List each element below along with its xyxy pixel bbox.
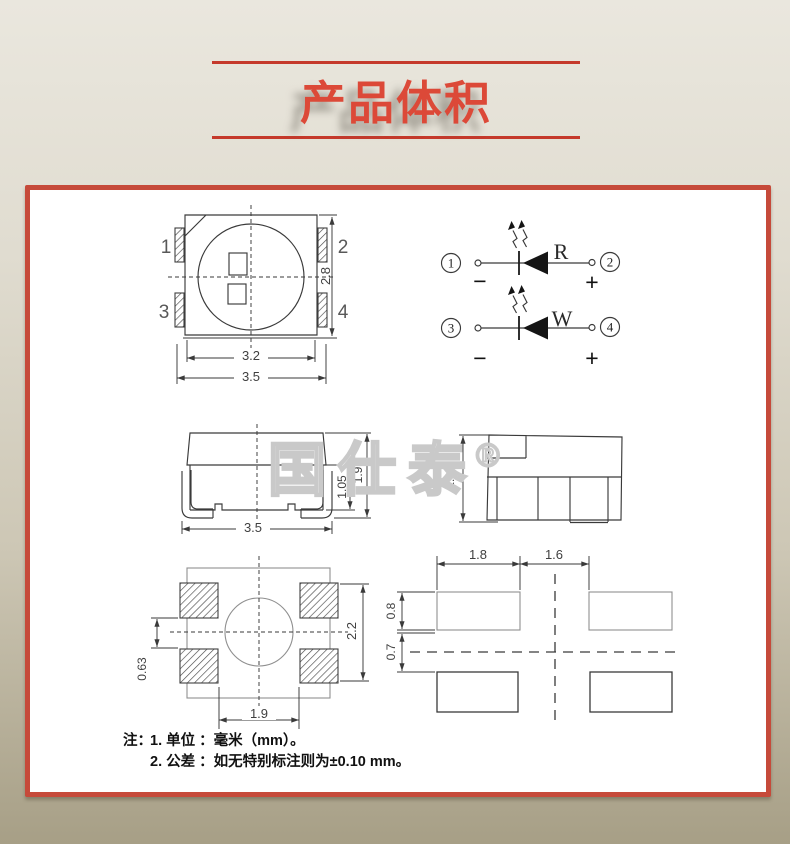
pin-pad-2 xyxy=(318,228,327,262)
terminal-4-circled: 4 xyxy=(607,320,614,335)
pin-pad-4 xyxy=(318,293,327,327)
dim-pad-width: 1.8 xyxy=(469,547,487,562)
pin-pad-1 xyxy=(175,228,184,262)
note-label: 注： xyxy=(123,731,152,749)
layout-pad-2 xyxy=(589,592,672,630)
layout-pad-1 xyxy=(437,592,520,630)
white-led-label: W xyxy=(552,306,573,331)
dim-overall-height: 2.2 xyxy=(344,622,359,640)
red-anode-sign: + xyxy=(585,269,598,295)
circuit-diagram: 1 2 R − + 3 4 W − + xyxy=(442,220,620,371)
center-lines xyxy=(410,574,680,720)
solder-pad-1 xyxy=(180,583,218,618)
extension-lines xyxy=(397,556,589,672)
red-cathode-sign: − xyxy=(473,268,486,294)
layout-pad-3 xyxy=(437,672,518,712)
pin-label-4: 4 xyxy=(338,302,349,323)
dim-pad-span: 1.9 xyxy=(250,706,268,721)
white-anode-sign: + xyxy=(585,345,598,371)
left-j-lead xyxy=(182,470,213,518)
terminal-3-circled: 3 xyxy=(448,321,455,336)
registered-trademark-icon: ® xyxy=(476,437,500,473)
dim-overall-width: 3.5 xyxy=(244,520,262,535)
led-chip-1 xyxy=(229,253,247,275)
center-lines xyxy=(168,205,336,349)
end-body-outline xyxy=(487,435,622,523)
page-background: 产品体积 xyxy=(0,0,790,844)
white-cathode-sign: − xyxy=(473,345,486,371)
top-view: 1 2 3 4 2.8 3.2 3.5 xyxy=(159,205,349,384)
dim-overall-height: 2.8 xyxy=(318,267,333,285)
notes: 注： 1. 单位 ：毫米（mm）。 2. 公差 ：如无特别标注则为±0.10 m… xyxy=(123,731,410,770)
pin-label-2: 2 xyxy=(338,237,349,258)
pin-label-1: 1 xyxy=(161,237,172,258)
dim-pad-height: 0.8 xyxy=(384,602,398,619)
dim-row-gap: 0.7 xyxy=(384,643,398,660)
note-line-2: 2. 公差 ：如无特别标注则为±0.10 mm。 xyxy=(150,752,410,770)
watermark-text: 国仕泰 xyxy=(268,438,478,503)
pad-layout: 1.8 1.6 0.8 0.7 xyxy=(384,547,680,720)
layout-pad-4 xyxy=(590,672,672,712)
dim-pad-edge: 0.63 xyxy=(135,657,149,681)
led-chip-2 xyxy=(228,284,246,304)
pin-label-3: 3 xyxy=(159,302,170,323)
solder-pad-3 xyxy=(180,649,218,683)
technical-drawing: 1 2 3 4 2.8 3.2 3.5 1 2 R − + 3 4 W − xyxy=(0,0,790,844)
dim-overall-width: 3.5 xyxy=(242,369,260,384)
watermark: 国仕泰® xyxy=(268,442,502,500)
pin-pad-3 xyxy=(175,293,184,327)
solder-pad-2 xyxy=(300,583,338,618)
bottom-view: 0.63 2.2 1.9 xyxy=(135,556,369,729)
terminal-1-circled: 1 xyxy=(448,256,455,271)
solder-pad-4 xyxy=(300,649,338,683)
red-led-label: R xyxy=(554,239,569,264)
terminal-2-circled: 2 xyxy=(607,255,614,270)
led-symbol-red xyxy=(442,220,620,275)
dim-pad-gap: 1.6 xyxy=(545,547,563,562)
note-line-1: 1. 单位 ：毫米（mm）。 xyxy=(150,731,305,749)
dim-body-width: 3.2 xyxy=(242,348,260,363)
